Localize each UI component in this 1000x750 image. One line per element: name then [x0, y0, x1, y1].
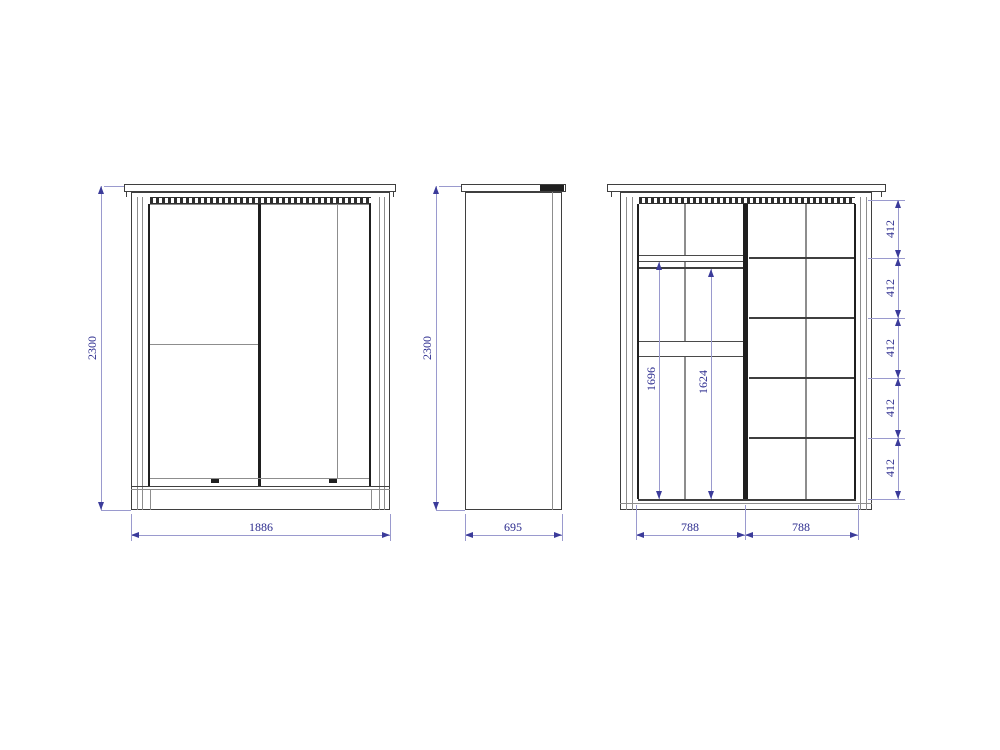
- arrow-down-icon: [98, 502, 104, 510]
- arrow-left-icon: [745, 532, 753, 538]
- dim-ext-line: [562, 514, 563, 541]
- dim-label-shelf-spacing: 412: [884, 339, 896, 357]
- right-compartment-shelf: [749, 377, 854, 379]
- arrow-down-icon: [708, 491, 714, 499]
- arrow-down-icon: [895, 491, 901, 499]
- internal-cornice-cap-left: [611, 192, 612, 197]
- dim-line-hang-right: [711, 269, 712, 499]
- internal-dentil-molding: [639, 197, 855, 204]
- arrow-right-icon: [554, 532, 562, 538]
- front-pilaster-line: [142, 197, 143, 510]
- dim-line-side-height: [436, 186, 437, 510]
- front-pilaster-line: [379, 197, 380, 510]
- dim-line-bottom-right-width: [745, 535, 858, 536]
- dim-ext-line: [745, 505, 746, 540]
- arrow-up-icon: [895, 378, 901, 386]
- internal-pilaster-line: [626, 197, 627, 510]
- dim-label-shelf-spacing: 412: [884, 220, 896, 238]
- arrow-down-icon: [895, 310, 901, 318]
- dim-line-bottom-left-width: [636, 535, 745, 536]
- left-compartment-mid-shelf: [639, 341, 743, 357]
- dim-ext-line: [104, 186, 124, 187]
- arrow-up-icon: [98, 186, 104, 194]
- arrow-right-icon: [850, 532, 858, 538]
- dim-label-shelf-spacing: 412: [884, 459, 896, 477]
- side-body: [465, 192, 562, 510]
- front-center-door-stile: [258, 204, 261, 486]
- front-door-guide: [211, 479, 219, 483]
- arrow-right-icon: [382, 532, 390, 538]
- front-plinth-inner-line: [131, 489, 390, 490]
- internal-cornice-cap-right: [881, 192, 882, 197]
- front-left-door-edge: [148, 204, 150, 486]
- dim-ext-line: [868, 499, 905, 500]
- front-right-door-edge: [369, 204, 371, 486]
- arrow-down-icon: [433, 502, 439, 510]
- dim-label-side-depth: 695: [504, 521, 522, 533]
- dim-label-shelf-spacing: 412: [884, 279, 896, 297]
- internal-floor-line: [638, 499, 856, 501]
- arrow-left-icon: [465, 532, 473, 538]
- dim-line-hang-left: [659, 262, 660, 499]
- internal-pilaster-line: [866, 197, 867, 510]
- arrow-down-icon: [656, 491, 662, 499]
- front-plinth-side-line: [371, 489, 372, 510]
- front-door-guide: [329, 479, 337, 483]
- front-pilaster-line: [137, 197, 138, 510]
- dim-label-bottom-right-width: 788: [792, 521, 810, 533]
- right-compartment-shelf: [749, 437, 854, 439]
- dim-ext-line: [436, 510, 465, 511]
- arrow-up-icon: [708, 269, 714, 277]
- arrow-left-icon: [131, 532, 139, 538]
- side-cornice-front-profile: [540, 185, 564, 191]
- dim-label-bottom-left-width: 788: [681, 521, 699, 533]
- dim-label-front-height: 2300: [86, 336, 98, 360]
- right-compartment-shelf: [749, 257, 854, 259]
- dim-label-hang-right: 1624: [697, 370, 709, 394]
- left-compartment-hanging-rail: [639, 267, 743, 269]
- dim-ext-line: [390, 514, 391, 541]
- dim-label-side-height: 2300: [421, 336, 433, 360]
- dim-ext-line: [636, 505, 637, 540]
- dim-line-shelf-chain: [898, 200, 899, 499]
- front-right-door-panel-line: [337, 204, 338, 478]
- front-cornice-cap-left: [126, 192, 127, 197]
- front-cornice: [124, 184, 396, 192]
- dim-ext-line: [131, 514, 132, 541]
- left-compartment-top-shelf: [639, 255, 743, 262]
- front-plinth-top-line: [131, 486, 390, 487]
- dim-ext-line: [465, 514, 466, 541]
- dim-ext-line: [439, 186, 461, 187]
- front-dentil-molding: [150, 197, 371, 204]
- front-pilaster-line: [384, 197, 385, 510]
- dim-ext-line: [858, 505, 859, 540]
- arrow-up-icon: [433, 186, 439, 194]
- internal-plinth-line: [620, 503, 872, 504]
- dim-label-hang-left: 1696: [645, 367, 657, 391]
- internal-cornice: [607, 184, 886, 192]
- dim-label-shelf-spacing: 412: [884, 399, 896, 417]
- dim-line-front-height: [101, 186, 102, 510]
- internal-right-wall: [854, 204, 856, 499]
- side-front-frame-line: [552, 192, 553, 510]
- arrow-down-icon: [895, 370, 901, 378]
- front-plinth-side-line: [150, 489, 151, 510]
- arrow-up-icon: [895, 318, 901, 326]
- internal-pilaster-line: [860, 197, 861, 510]
- arrow-up-icon: [656, 262, 662, 270]
- technical-drawing-canvas: 2300 1886 2300 695: [0, 0, 1000, 750]
- front-left-door-rail-line: [150, 344, 258, 345]
- right-compartment-shelf: [749, 317, 854, 319]
- dim-line-side-depth: [465, 535, 562, 536]
- arrow-down-icon: [895, 430, 901, 438]
- arrow-up-icon: [895, 200, 901, 208]
- internal-center-partition: [743, 204, 748, 499]
- arrow-left-icon: [636, 532, 644, 538]
- arrow-up-icon: [895, 258, 901, 266]
- arrow-down-icon: [895, 250, 901, 258]
- right-compartment-divider: [805, 204, 807, 499]
- dim-line-front-width: [131, 535, 390, 536]
- dim-ext-line: [101, 510, 131, 511]
- arrow-up-icon: [895, 438, 901, 446]
- arrow-right-icon: [737, 532, 745, 538]
- internal-pilaster-line: [632, 197, 633, 510]
- dim-label-front-width: 1886: [249, 521, 273, 533]
- front-cornice-cap-right: [393, 192, 394, 197]
